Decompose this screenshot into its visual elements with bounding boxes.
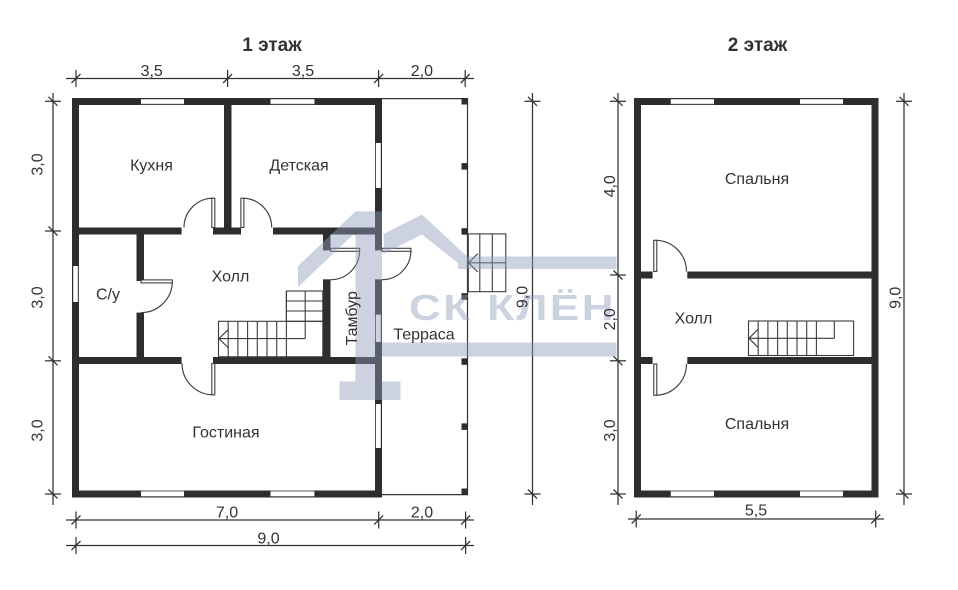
svg-text:2,0: 2,0	[602, 308, 619, 330]
svg-text:3,0: 3,0	[30, 419, 47, 441]
svg-text:9,0: 9,0	[887, 287, 904, 309]
svg-text:Спальня: Спальня	[725, 171, 789, 188]
svg-text:2,0: 2,0	[411, 505, 433, 522]
svg-text:Холл: Холл	[675, 311, 713, 328]
svg-text:Спальня: Спальня	[725, 416, 789, 433]
svg-text:9,0: 9,0	[257, 531, 279, 548]
svg-text:3,0: 3,0	[30, 286, 47, 308]
svg-text:9,0: 9,0	[515, 286, 532, 308]
svg-text:Холл: Холл	[212, 268, 250, 285]
svg-text:СК КЛЁН: СК КЛЁН	[409, 287, 616, 328]
svg-text:Детская: Детская	[269, 158, 328, 175]
svg-text:4,0: 4,0	[602, 175, 619, 197]
svg-text:5,5: 5,5	[745, 503, 767, 520]
svg-text:С/у: С/у	[96, 287, 120, 304]
svg-text:Гостиная: Гостиная	[192, 425, 259, 442]
svg-text:3,5: 3,5	[292, 63, 314, 80]
svg-text:2,0: 2,0	[411, 63, 433, 80]
svg-text:1 этаж: 1 этаж	[242, 35, 302, 56]
svg-text:Терраса: Терраса	[393, 327, 454, 344]
svg-text:Тамбур: Тамбур	[344, 291, 361, 345]
svg-text:7,0: 7,0	[216, 505, 238, 522]
svg-text:2 этаж: 2 этаж	[728, 35, 788, 56]
svg-text:3,0: 3,0	[30, 153, 47, 175]
svg-text:Кухня: Кухня	[130, 158, 173, 175]
svg-text:3,0: 3,0	[602, 419, 619, 441]
svg-text:3,5: 3,5	[141, 63, 163, 80]
